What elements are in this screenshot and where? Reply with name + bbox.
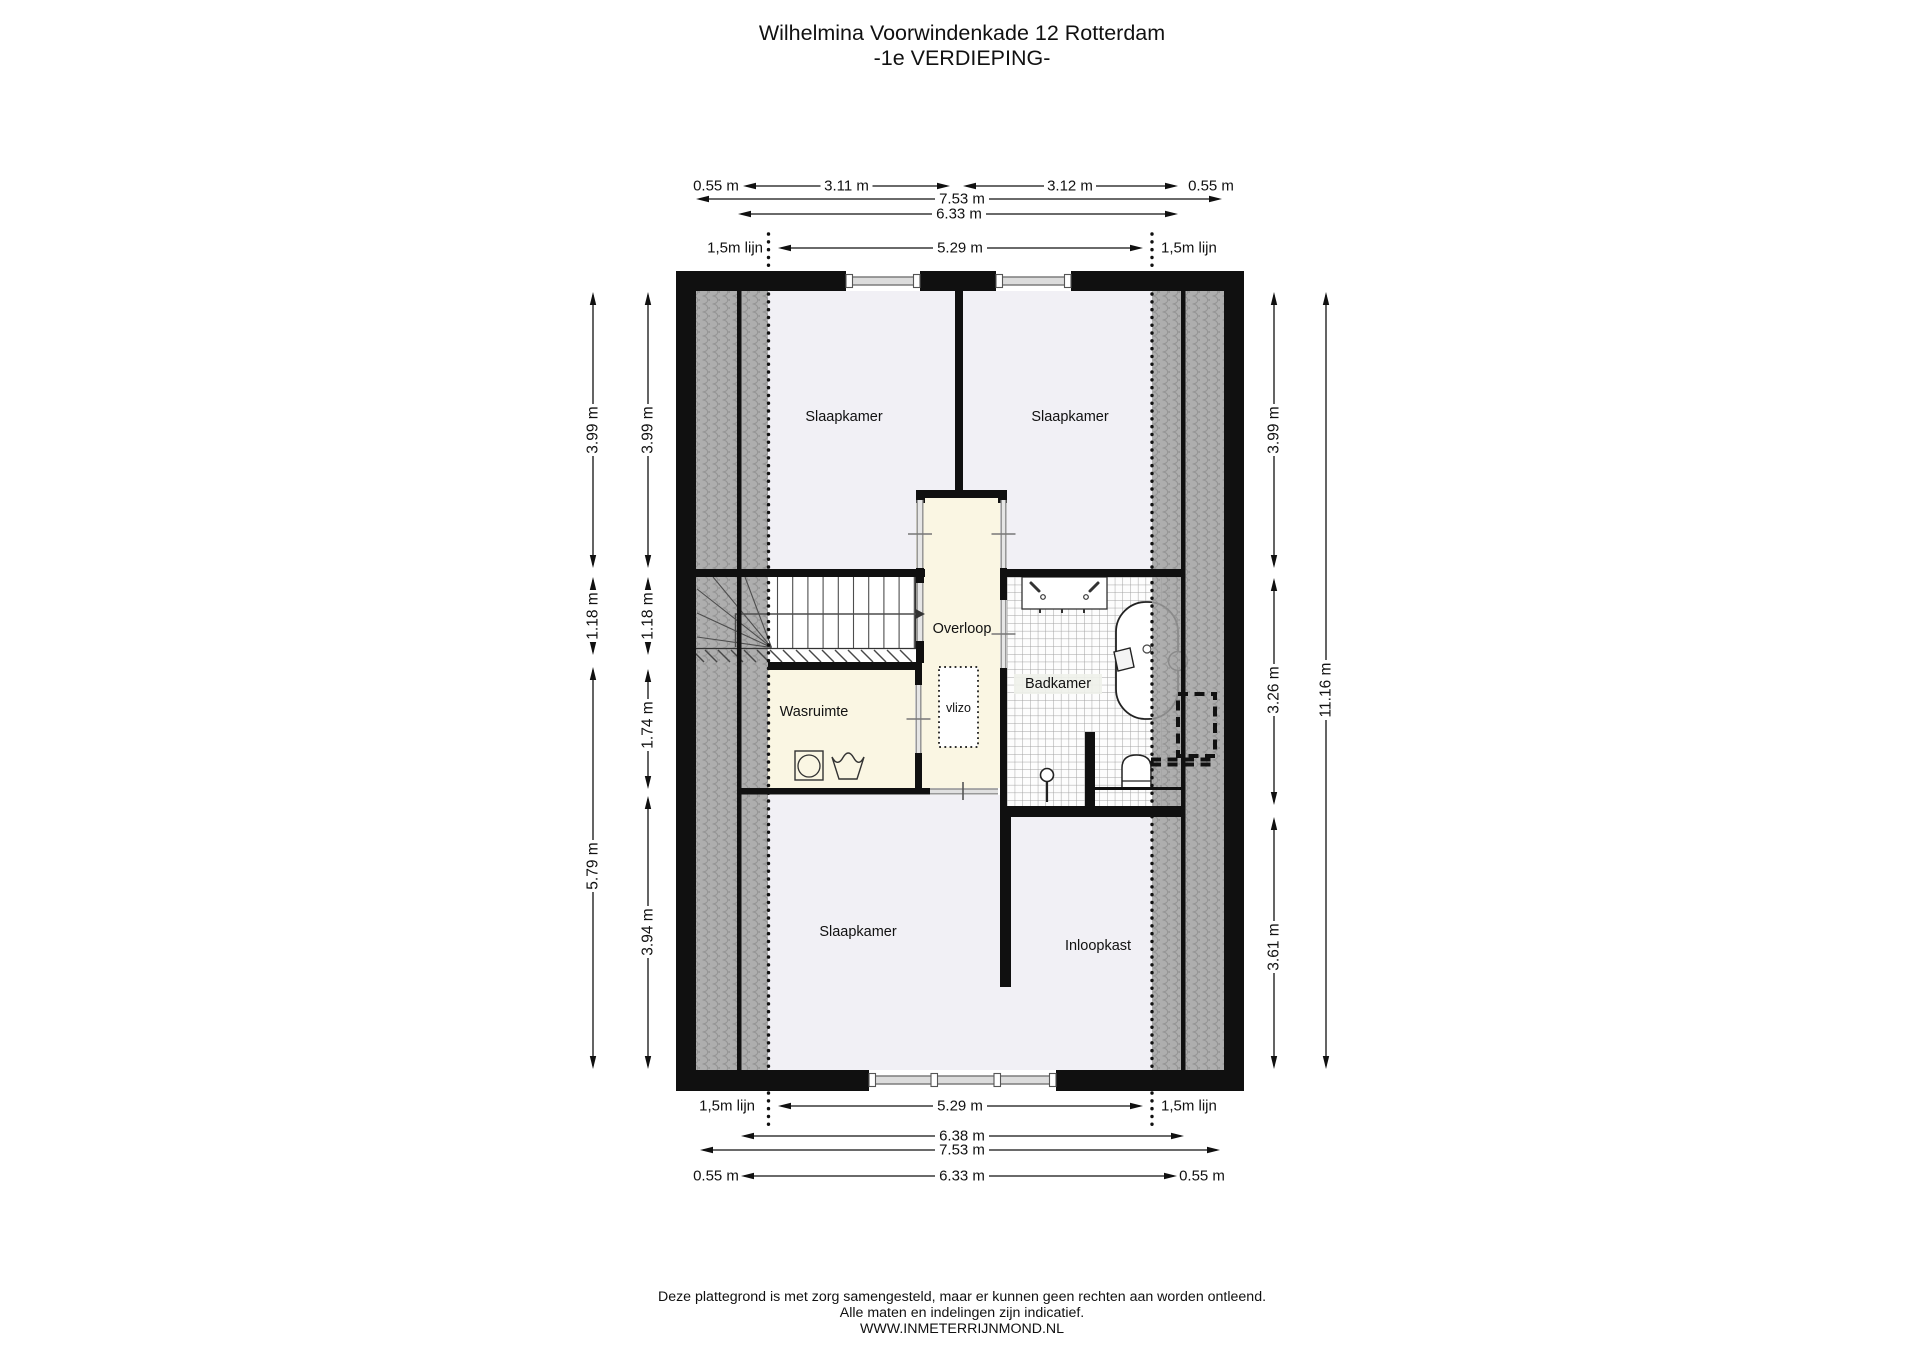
- svg-text:Slaapkamer: Slaapkamer: [1031, 409, 1109, 425]
- svg-text:5.29 m: 5.29 m: [937, 240, 983, 257]
- svg-text:Slaapkamer: Slaapkamer: [819, 924, 897, 940]
- svg-text:0.55 m: 0.55 m: [693, 178, 739, 195]
- svg-text:1.18 m: 1.18 m: [640, 592, 657, 639]
- svg-text:WWW.INMETERRIJNMOND.NL: WWW.INMETERRIJNMOND.NL: [860, 1321, 1064, 1337]
- svg-text:1,5m lijn: 1,5m lijn: [699, 1098, 755, 1115]
- svg-text:-1e VERDIEPING-: -1e VERDIEPING-: [874, 46, 1051, 70]
- svg-text:vlizo: vlizo: [946, 701, 971, 715]
- svg-text:3.99 m: 3.99 m: [640, 406, 657, 453]
- svg-text:1.74 m: 1.74 m: [640, 701, 657, 748]
- svg-text:6.33 m: 6.33 m: [936, 206, 982, 223]
- svg-text:6.33 m: 6.33 m: [939, 1168, 985, 1185]
- svg-text:Wasruimte: Wasruimte: [780, 704, 849, 720]
- svg-text:Inloopkast: Inloopkast: [1065, 938, 1131, 954]
- svg-text:3.99 m: 3.99 m: [585, 406, 602, 453]
- svg-text:Overloop: Overloop: [933, 621, 992, 637]
- svg-text:Slaapkamer: Slaapkamer: [805, 409, 883, 425]
- svg-text:Wilhelmina Voorwindenkade 12 R: Wilhelmina Voorwindenkade 12 Rotterdam: [759, 21, 1165, 45]
- svg-text:3.11 m: 3.11 m: [824, 178, 869, 195]
- svg-text:Alle maten en indelingen zijn: Alle maten en indelingen zijn indicatief…: [840, 1305, 1085, 1321]
- svg-text:7.53 m: 7.53 m: [939, 1142, 985, 1159]
- svg-text:0.55 m: 0.55 m: [693, 1168, 739, 1185]
- svg-text:5.79 m: 5.79 m: [585, 842, 602, 889]
- svg-text:3.61 m: 3.61 m: [1266, 923, 1283, 970]
- svg-text:Deze plattegrond is met zorg s: Deze plattegrond is met zorg samengestel…: [658, 1289, 1266, 1305]
- svg-text:11.16 m: 11.16 m: [1318, 663, 1335, 718]
- svg-text:0.55 m: 0.55 m: [1188, 178, 1234, 195]
- svg-text:3.99 m: 3.99 m: [1266, 406, 1283, 453]
- svg-text:1,5m lijn: 1,5m lijn: [1161, 240, 1217, 257]
- svg-text:0.55 m: 0.55 m: [1179, 1168, 1225, 1185]
- svg-text:1,5m lijn: 1,5m lijn: [707, 240, 763, 257]
- svg-text:1.18 m: 1.18 m: [585, 592, 602, 639]
- svg-text:Badkamer: Badkamer: [1025, 676, 1091, 692]
- svg-text:1,5m lijn: 1,5m lijn: [1161, 1098, 1217, 1115]
- svg-text:3.26 m: 3.26 m: [1266, 666, 1283, 713]
- svg-text:3.94 m: 3.94 m: [640, 908, 657, 955]
- svg-text:5.29 m: 5.29 m: [937, 1098, 983, 1115]
- svg-text:3.12 m: 3.12 m: [1047, 178, 1093, 195]
